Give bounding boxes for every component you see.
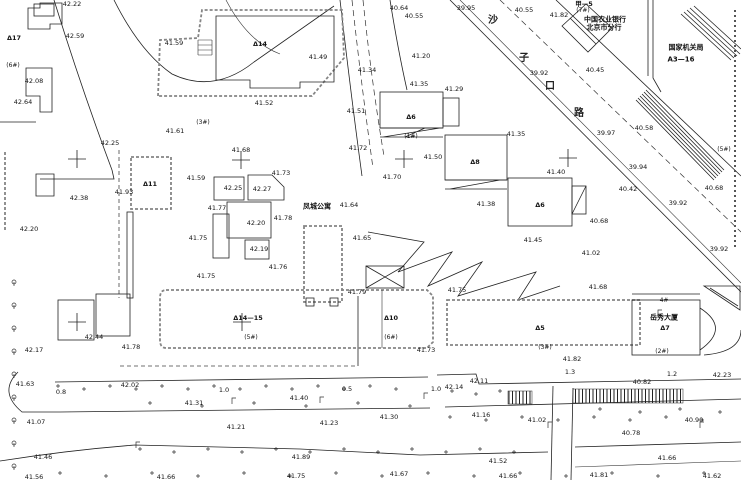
spot-elevation-label: 40.90 [685, 417, 704, 424]
building-number-label: Δ17 [7, 35, 21, 42]
spot-elevation-label: 41.49 [309, 54, 328, 61]
spot-elevation-label: 41.02 [528, 417, 547, 424]
street-name-char: 口 [545, 82, 555, 92]
parcel-number-label: 4# [660, 298, 669, 304]
spot-elevation-label: 41.61 [166, 128, 185, 135]
survey-map: 42.2242.59Δ1741.59(6#)42.0842.64(3#)41.6… [0, 0, 741, 480]
width-dimension-label: 1.0 [219, 387, 229, 394]
street-name-char: 路 [574, 109, 584, 119]
spot-elevation-label: 41.64 [340, 202, 359, 209]
spot-elevation-label: 41.66 [499, 473, 518, 480]
spot-elevation-label: 41.78 [122, 344, 141, 351]
place-name-label: 凤城公寓 [303, 204, 331, 211]
spot-elevation-label: 41.30 [380, 414, 399, 421]
label-layer: 42.2242.59Δ1741.59(6#)42.0842.64(3#)41.6… [0, 0, 741, 480]
parcel-number-label: (1#) [404, 134, 418, 140]
spot-elevation-label: 41.73 [272, 170, 291, 177]
spot-elevation-label: 41.59 [187, 175, 206, 182]
width-dimension-label: 1.2 [667, 371, 677, 378]
spot-elevation-label: 40.64 [390, 5, 409, 12]
spot-elevation-label: 41.16 [472, 412, 491, 419]
spot-elevation-label: 40.68 [590, 218, 609, 225]
parcel-number-label: (6#) [6, 63, 20, 69]
spot-elevation-label: 39.92 [710, 246, 729, 253]
spot-elevation-label: 41.63 [16, 381, 35, 388]
spot-elevation-label: 40.55 [515, 7, 534, 14]
spot-elevation-label: 42.22 [63, 1, 82, 8]
parcel-number-label: (5#) [244, 335, 258, 341]
spot-elevation-label: 41.82 [563, 356, 582, 363]
spot-elevation-label: 41.34 [358, 67, 377, 74]
spot-elevation-label: 42.02 [121, 382, 140, 389]
parcel-number-label: (3#) [196, 120, 210, 126]
spot-elevation-label: 42.64 [14, 99, 33, 106]
spot-elevation-label: 41.07 [27, 419, 46, 426]
spot-elevation-label: 40.58 [635, 125, 654, 132]
spot-elevation-label: 41.68 [589, 284, 608, 291]
spot-elevation-label: 39.94 [629, 164, 648, 171]
spot-elevation-label: 41.82 [550, 12, 569, 19]
spot-elevation-label: 41.59 [165, 40, 184, 47]
spot-elevation-label: 42.38 [70, 195, 89, 202]
parcel-number-label: (5#) [717, 147, 731, 153]
spot-elevation-label: 40.78 [622, 430, 641, 437]
spot-elevation-label: 41.89 [292, 454, 311, 461]
place-name-label: A3—16 [667, 57, 694, 64]
parcel-number-label: (3#) [538, 345, 552, 351]
spot-elevation-label: 41.52 [489, 458, 508, 465]
spot-elevation-label: 41.65 [353, 235, 372, 242]
spot-elevation-label: 42.25 [224, 185, 243, 192]
spot-elevation-label: 41.20 [412, 53, 431, 60]
spot-elevation-label: 41.66 [157, 474, 176, 480]
spot-elevation-label: 40.45 [586, 67, 605, 74]
spot-elevation-label: 41.51 [347, 108, 366, 115]
place-name-label: 北京市分行 [587, 25, 622, 32]
building-number-label: Δ14—15 [233, 315, 263, 322]
spot-elevation-label: 42.25 [101, 140, 120, 147]
spot-elevation-label: 41.75 [287, 473, 306, 480]
street-name-char: 沙 [488, 16, 498, 26]
spot-elevation-label: 41.35 [410, 81, 429, 88]
spot-elevation-label: 42.19 [250, 246, 269, 253]
parcel-number-label: (2#) [655, 349, 669, 355]
spot-elevation-label: 41.75 [189, 235, 208, 242]
building-number-label: Δ8 [470, 159, 480, 166]
spot-elevation-label: 41.52 [255, 100, 274, 107]
width-dimension-label: 1.0 [431, 386, 441, 393]
place-name-label: 国家机关局 [669, 45, 704, 52]
spot-elevation-label: 41.50 [424, 154, 443, 161]
building-number-label: Δ10 [384, 315, 398, 322]
spot-elevation-label: 42.44 [85, 334, 104, 341]
building-number-label: Δ14 [253, 41, 267, 48]
spot-elevation-label: 41.31 [185, 400, 204, 407]
spot-elevation-label: 41.29 [445, 86, 464, 93]
building-number-label: Δ11 [143, 181, 157, 188]
spot-elevation-label: 41.78 [274, 215, 293, 222]
spot-elevation-label: 41.67 [390, 471, 409, 478]
building-number-label: Δ7 [660, 325, 670, 332]
spot-elevation-label: 41.72 [349, 145, 368, 152]
spot-elevation-label: 41.77 [208, 205, 227, 212]
spot-elevation-label: 41.46 [34, 454, 53, 461]
spot-elevation-label: 42.17 [25, 347, 44, 354]
spot-elevation-label: 41.76 [269, 264, 288, 271]
spot-elevation-label: 41.40 [547, 169, 566, 176]
spot-elevation-label: 41.23 [320, 420, 339, 427]
spot-elevation-label: 39.97 [597, 130, 616, 137]
spot-elevation-label: 41.56 [25, 474, 44, 480]
spot-elevation-label: 41.40 [290, 395, 309, 402]
spot-elevation-label: 41.70 [383, 174, 402, 181]
spot-elevation-label: 41.02 [582, 250, 601, 257]
spot-elevation-label: 41.66 [658, 455, 677, 462]
spot-elevation-label: 42.20 [20, 226, 39, 233]
width-dimension-label: 0.8 [56, 389, 66, 396]
spot-elevation-label: 42.14 [445, 384, 464, 391]
building-number-label: Δ5 [535, 325, 545, 332]
spot-elevation-label: 40.42 [619, 186, 638, 193]
parcel-number-label: (7#) [576, 8, 590, 14]
spot-elevation-label: 41.35 [507, 131, 526, 138]
spot-elevation-label: 41.75 [197, 273, 216, 280]
spot-elevation-label: 40.68 [705, 185, 724, 192]
spot-elevation-label: 39.95 [457, 5, 476, 12]
spot-elevation-label: 41.93 [115, 189, 134, 196]
building-number-label: Δ6 [535, 202, 545, 209]
spot-elevation-label: 41.79 [348, 289, 367, 296]
spot-elevation-label: 41.68 [232, 147, 251, 154]
width-dimension-label: 1.3 [565, 369, 575, 376]
spot-elevation-label: 42.08 [25, 78, 44, 85]
spot-elevation-label: 42.11 [470, 378, 489, 385]
place-name-label: 岳秀大厦 [650, 315, 678, 322]
street-name-char: 子 [519, 54, 529, 64]
spot-elevation-label: 41.81 [590, 472, 609, 479]
spot-elevation-label: 41.75 [448, 287, 467, 294]
spot-elevation-label: 42.59 [66, 33, 85, 40]
spot-elevation-label: 42.20 [247, 220, 266, 227]
parcel-number-label: (6#) [384, 335, 398, 341]
spot-elevation-label: 40.55 [405, 13, 424, 20]
spot-elevation-label: 39.92 [669, 200, 688, 207]
spot-elevation-label: 39.92 [530, 70, 549, 77]
width-dimension-label: 0.5 [342, 386, 352, 393]
spot-elevation-label: 40.82 [633, 379, 652, 386]
building-number-label: Δ6 [406, 114, 416, 121]
spot-elevation-label: 41.62 [703, 473, 722, 480]
spot-elevation-label: 41.21 [227, 424, 246, 431]
spot-elevation-label: 42.27 [253, 186, 272, 193]
spot-elevation-label: 42.23 [713, 372, 732, 379]
spot-elevation-label: 41.38 [477, 201, 496, 208]
place-name-label: 中国农业银行 [584, 17, 626, 24]
spot-elevation-label: 41.45 [524, 237, 543, 244]
spot-elevation-label: 41.73 [417, 347, 436, 354]
